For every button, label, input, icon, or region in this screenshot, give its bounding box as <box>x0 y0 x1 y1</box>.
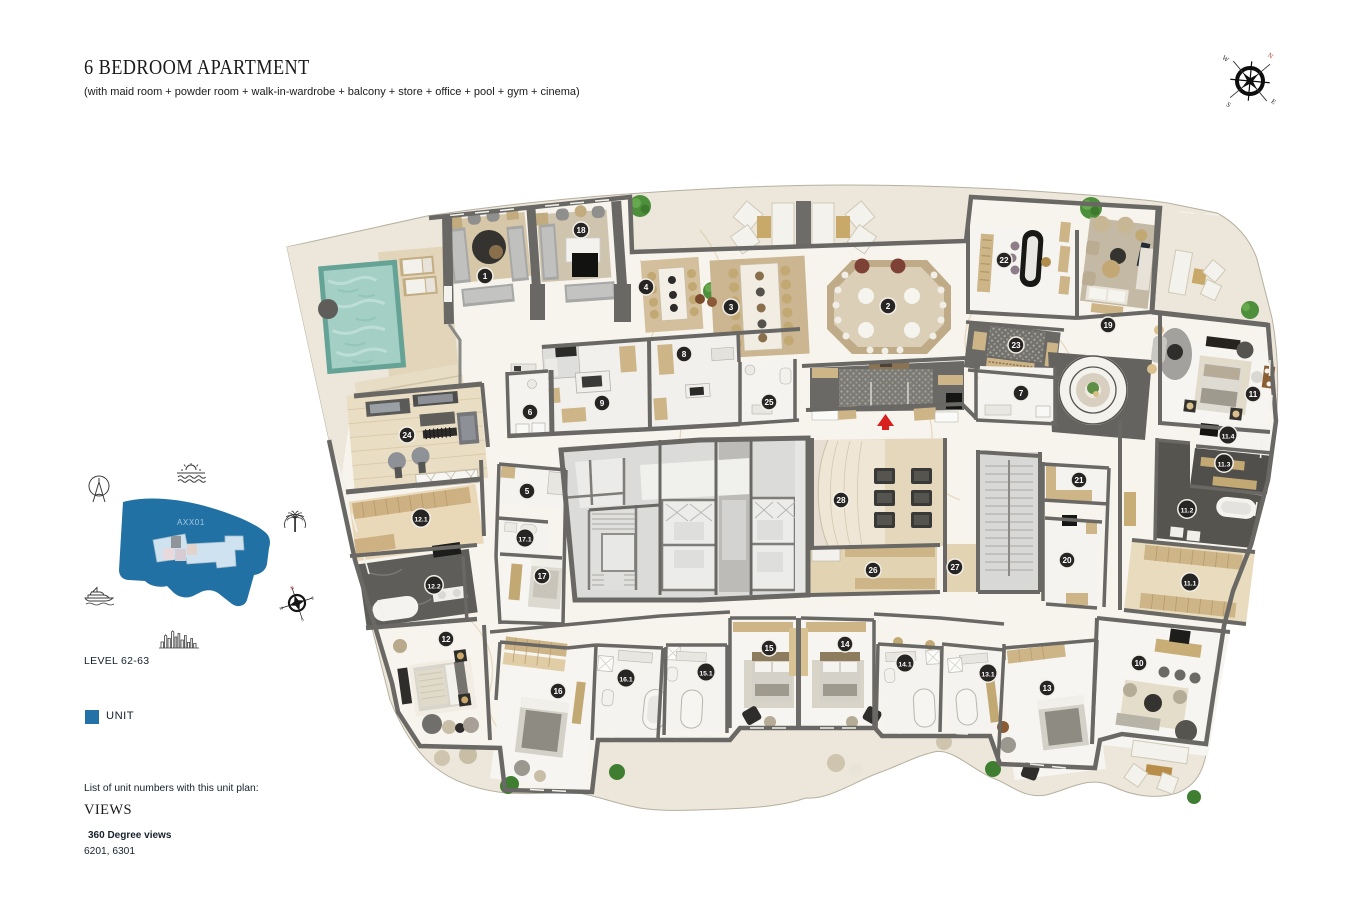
svg-text:24: 24 <box>402 431 412 440</box>
svg-text:23: 23 <box>1011 341 1021 350</box>
svg-text:11.2: 11.2 <box>1181 508 1194 515</box>
svg-text:8: 8 <box>682 350 687 359</box>
svg-text:19: 19 <box>1103 321 1113 330</box>
svg-text:11: 11 <box>1249 390 1258 399</box>
svg-text:15: 15 <box>764 644 774 653</box>
svg-text:S: S <box>300 617 304 623</box>
svg-text:12.2: 12.2 <box>427 584 440 591</box>
svg-text:17.1: 17.1 <box>518 537 531 544</box>
svg-text:11.1: 11.1 <box>1184 581 1197 588</box>
svg-text:17: 17 <box>537 572 547 581</box>
svg-text:E: E <box>311 595 315 601</box>
svg-text:AXX01: AXX01 <box>177 518 205 527</box>
svg-text:15.1: 15.1 <box>699 671 712 678</box>
svg-text:9: 9 <box>600 399 605 408</box>
svg-text:7: 7 <box>1019 389 1024 398</box>
svg-text:14: 14 <box>840 640 850 649</box>
svg-text:18: 18 <box>576 226 586 235</box>
svg-text:N: N <box>290 585 295 591</box>
svg-text:21: 21 <box>1074 476 1084 485</box>
svg-text:5: 5 <box>525 487 530 496</box>
svg-text:25: 25 <box>764 398 774 407</box>
svg-text:26: 26 <box>868 566 878 575</box>
svg-text:16.1: 16.1 <box>619 677 632 684</box>
svg-text:12: 12 <box>441 635 451 644</box>
svg-text:14.1: 14.1 <box>898 662 911 669</box>
svg-text:16: 16 <box>553 687 563 696</box>
svg-text:12.1: 12.1 <box>414 517 427 524</box>
svg-text:4: 4 <box>644 283 649 292</box>
svg-text:2: 2 <box>886 302 891 311</box>
svg-text:10: 10 <box>1134 659 1144 668</box>
svg-text:E: E <box>1269 98 1276 106</box>
svg-text:S: S <box>1225 101 1232 109</box>
svg-text:20: 20 <box>1062 556 1072 565</box>
svg-text:27: 27 <box>950 563 960 572</box>
svg-text:22: 22 <box>999 256 1009 265</box>
svg-text:W: W <box>1221 55 1231 65</box>
svg-text:1: 1 <box>483 272 488 281</box>
svg-text:11.3: 11.3 <box>1218 462 1231 469</box>
svg-text:3: 3 <box>729 303 734 312</box>
svg-text:13: 13 <box>1042 684 1052 693</box>
svg-text:6: 6 <box>528 408 533 417</box>
svg-text:13.1: 13.1 <box>981 672 994 679</box>
svg-text:28: 28 <box>836 496 846 505</box>
svg-text:N: N <box>1266 52 1274 61</box>
svg-text:11.4: 11.4 <box>1222 434 1235 441</box>
